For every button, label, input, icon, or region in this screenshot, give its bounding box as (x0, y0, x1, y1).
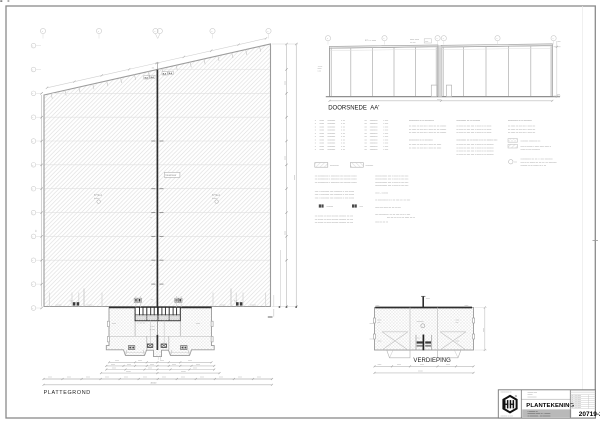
svg-text:xxxx: xxxx (284, 81, 286, 85)
svg-text:xxxx: xxxx (188, 360, 192, 362)
svg-text:xxxxxxxxx xx xx xxxxxxx: xxxxxxxxx xx xx xxxxxxx (508, 120, 533, 122)
svg-text:xxxxx: xxxxx (418, 371, 423, 373)
svg-text:xxxxxx: xxxxxx (250, 304, 256, 306)
svg-text:xxxxxxxxxxx xxx x xxxx xx xxx: xxxxxxxxxxx xxx x xxxx xx xxx xxx (375, 175, 409, 177)
svg-text:DOORSNEDE AA': DOORSNEDE AA' (328, 105, 379, 111)
svg-text:xxxx: xxxx (112, 367, 116, 369)
svg-text:xxxxxxx xxxxxxxx xx: xxxxxxx xxxxxxxx xx (521, 141, 542, 143)
svg-text:xxxxxxxxx xx xx xxxxxxx: xxxxxxxxx xx xx xxxxxxx (409, 140, 434, 142)
svg-text:xxxxxxxx: xxxxxxxx (330, 165, 340, 167)
svg-text:xxx xx xxxxx x xxxx xxxx xxxx: xxx xx xxxxx x xxxx xxxx xxxx x (521, 146, 552, 148)
svg-text:xxx: xxx (558, 41, 561, 43)
svg-text:xxxxxxx: xxxxxxx (328, 136, 337, 138)
svg-text:xx xxxxx xx xxxx xxxxxx xxxxxx: xx xxxxx xx xxxx xxxxxx xxxxxxx xx xxx (315, 219, 354, 221)
svg-text:xxxxxxx: xxxxxxx (417, 321, 424, 323)
svg-text:xxxx: xxxx (48, 377, 52, 379)
svg-text:xxxx: xxxx (378, 341, 382, 343)
svg-text:xxxxxx: xxxxxx (220, 304, 226, 306)
svg-text:xxxxxxx: xxxxxxx (328, 149, 337, 151)
svg-text:xxxx: xxxx (105, 377, 109, 379)
svg-text:xxxx: xxxx (148, 367, 152, 369)
svg-text:xxxxxxxxxx xx xx x x xxx xxxxx: xxxxxxxxxx xx xx x x xxx xxxxxxx (521, 159, 554, 161)
svg-text:xx xxxxx xx xxxx xxxxxx xxxxxx: xx xxxxx xx xxxx xxxxxx xxxxxxx xx xxx (315, 216, 354, 218)
svg-text:xxxx: xxxx (238, 377, 242, 379)
svg-text:xxxx: xxxx (219, 377, 223, 379)
svg-text:xxx xxxxxxxx x xx xx xxx xx x: xxx xxxxxxxx x xx xx xxx xx xx x xxx (375, 214, 411, 216)
svg-text:xxxx: xxxx (86, 377, 90, 379)
svg-text:xxxxxxx: xxxxxxx (370, 123, 379, 125)
svg-text:x: x (267, 31, 268, 33)
svg-text:xxxxxxxxx xx xx xxxxxxx: xxxxxxxxx xx xx xxxxxxx (456, 120, 481, 122)
svg-text:xxxx: xxxx (456, 341, 460, 343)
svg-text:xx xxxx xx xxx xxx x xxxx xx: xx xxxx xx xxx xxx x xxxx xx (508, 132, 536, 134)
svg-text:xxxxx: xxxxx (181, 371, 186, 373)
svg-text:xxxx: xxxx (112, 323, 116, 325)
svg-text:xxxxxxxxx: xxxxxxxxx (528, 397, 537, 399)
svg-text:x: x (32, 284, 33, 286)
svg-text:x: x (32, 189, 33, 191)
svg-text:x.xx: x.xx (318, 71, 322, 73)
svg-text:x xx x: x xx x (416, 338, 421, 340)
svg-text:x: x (32, 93, 33, 95)
svg-text:20719-2: 20719-2 (579, 411, 600, 418)
svg-text:xxxx xxxx: xxxx xxxx (410, 39, 420, 41)
svg-text:xxxx: xxxx (160, 360, 164, 362)
svg-text:xxxxxxx: xxxxxxx (328, 133, 337, 135)
svg-text:xxx x xxxxxxxx xxx xxxxxxxx x: xxx x xxxxxxxx xxx xxxxxxxx x xxx xxxxx (315, 191, 355, 193)
svg-text:xxxx: xxxx (67, 377, 71, 379)
svg-text:xxxx: xxxx (162, 377, 166, 379)
svg-text:xx xxxxxxxx - xx xxxxxxxx: xx xxxxxxxx - xx xxxxxxxx (528, 415, 551, 417)
svg-text:xxx x xxxxxxxx xxx xxxxxxxx x: xxx x xxxxxxxx xxx xxxxxxxx x xxx xxxxx (315, 194, 355, 196)
svg-text:xxxxxxx: xxxxxxx (366, 165, 375, 167)
svg-text:xxxxxxxxxxx xxx x xxxx xx xxx: xxxxxxxxxxx xxx x xxxx xx xxx xxx (375, 185, 409, 187)
svg-text:xxxxxxx: xxxxxxx (328, 126, 337, 128)
svg-text:xxxxxx xx xx xxxxx xx x xx: xxxxxx xx xx xxxxx xx x xx (521, 165, 547, 167)
svg-text:xxxxxx: xxxxxx (327, 206, 334, 208)
svg-text:beton: beton (94, 197, 100, 200)
svg-text:xxxx: xxxx (127, 364, 131, 366)
svg-text:xxxx: xxxx (483, 328, 485, 332)
svg-text:xx xxxxxxxxxx x xxxxxxxx xxx x: xx xxxxxxxxxx x xxxxxxxx xxx xxxxxx xxxx… (315, 175, 358, 177)
svg-text:x.x.x: x.x.x (151, 326, 155, 328)
svg-text:xxxxxxx: xxxxxxx (370, 146, 379, 148)
svg-text:xxxx: xxxx (446, 364, 450, 366)
svg-text:xx xxxx xx xxx xxx x xxxx xx x: xx xxxx xx xxx xxx x xxxx xx xx xxxxxx (456, 147, 494, 149)
svg-text:xx xxx: xx xxx (410, 42, 416, 44)
svg-text:x: x (553, 38, 554, 40)
svg-text:xxxx xx xxx xxxxxxx: xxxx xx xxx xxxxxxx (521, 149, 541, 151)
svg-text:x: x (32, 213, 33, 215)
svg-text:xxxx xx xx xx: xxxx xx xx xx (375, 222, 389, 224)
svg-text:xxxx: xxxx (115, 360, 119, 362)
svg-text:xx xxxxxxxxx xx x xx xxx xx x: xx xxxxxxxxx xx x xx xxx xx x xx xxx (375, 200, 411, 202)
svg-text:x: x (154, 31, 155, 33)
svg-text:x: x (42, 31, 43, 33)
svg-text:xxxxxxx: xxxxxxx (328, 130, 337, 132)
svg-text:xx xxxxx xx xxxx xxxxxx xxxxxx: xx xxxxx xx xxxx xxxxxx xxxxxxx xx xxx (315, 222, 354, 224)
svg-text:xx xxxx xx xxx xxx x xxxx xx x: xx xxxx xx xxx xxx x xxxx xx xx xxxxxx (456, 154, 494, 156)
svg-text:xxxxxxx: xxxxxxx (370, 130, 379, 132)
svg-text:xx xxxx xx xxx xxx x xxxx xx: xx xxxx xx xxx xxx x xxxx xx (508, 126, 536, 128)
svg-text:xxxxx: xxxxx (294, 175, 296, 180)
svg-text:xx xxxx xx xxx xxx x xxxx xx x: xx xxxx xx xxx xxx x xxxx xx xx xxxxxx (456, 144, 494, 146)
svg-text:x: x (32, 46, 33, 48)
svg-text:xx xxxx xx xxx xxx x xxxx xx x: xx xxxx xx xxx xxx x xxxx xx xx xxxxxx (409, 129, 447, 131)
svg-text:xxxxxx: xxxxxx (87, 304, 93, 306)
svg-text:xxx: xxx (456, 322, 459, 324)
svg-text:xxxx: xxxx (284, 156, 286, 160)
svg-text:xxxx: xxxx (420, 364, 424, 366)
svg-text:xxxxxxx: xxxxxxx (328, 120, 337, 122)
svg-text:xxxx - xxxxxx: xxxx - xxxxxx (375, 192, 389, 194)
svg-text:xxxx: xxxx (124, 377, 128, 379)
svg-text:xxxxxxxxxxx xxx x xxxx xx xxx: xxxxxxxxxxx xxx x xxxx xx xxx xxx (375, 182, 409, 184)
svg-text:xxxxxxx: xxxxxxx (370, 139, 379, 141)
svg-text:40500: 40500 (151, 383, 158, 385)
svg-text:xxxx: xxxx (257, 377, 261, 379)
svg-text:x: x (437, 38, 438, 40)
svg-text:xxxx: xxxx (465, 305, 469, 307)
svg-text:x: x (32, 308, 33, 310)
svg-text:xxxx: xxxx (437, 99, 441, 101)
svg-text:x: x (32, 69, 33, 71)
svg-text:beton: beton (212, 197, 218, 200)
svg-text:xx xxxx xx xxx xxx x xxxx xx x: xx xxxx xx xxx xxx x xxxx xx xxxx (409, 147, 442, 149)
svg-text:x: x (327, 38, 328, 40)
svg-text:xx xxxx xx xxx xxx x xxxx xx x: xx xxxx xx xxx xxx x xxxx xx xx xxxx (456, 129, 492, 131)
svg-text:x: x (32, 141, 33, 143)
svg-text:xx xxx: xx xxx (150, 329, 156, 331)
svg-text:xx xxxx xx xxx xxx x xxxx xx x: xx xxxx xx xxx xxx x xxxx xx xx xxxxxx (409, 132, 447, 134)
svg-text:xxxxxxx: xxxxxxx (370, 149, 379, 151)
svg-text:xxxx xxx xxxx xx xx xx xxx: xxxx xxx xxxx xx xx xx xxx (375, 207, 401, 209)
svg-text:xxxxxxxxx xx xx xxxxx xx xx xx: xxxxxxxxx xx xx xxxxx xx xx xx xxxxxx xx… (456, 140, 498, 142)
svg-text:xx: xx (150, 265, 152, 267)
svg-text:875+ x xxxx: 875+ x xxxx (365, 40, 377, 42)
svg-text:x: x (32, 117, 33, 119)
svg-text:xxx: xxx (378, 322, 381, 324)
svg-text:x: x (443, 38, 444, 40)
svg-text:x x x x x x: x x x x x x (137, 322, 145, 324)
svg-text:xxxx: xxxx (196, 364, 200, 366)
svg-text:xxxxxxxxx xx xx xxxxxxxx: xxxxxxxxx xx xx xxxxxxxx (409, 120, 435, 122)
svg-text:x: x (32, 165, 33, 167)
svg-text:xxxxxxx: xxxxxxx (328, 146, 337, 148)
svg-text:xxxx: xxxx (172, 364, 176, 366)
svg-text:xxxx: xxxx (196, 323, 200, 325)
svg-text:xxxxxxx: xxxxxxx (370, 126, 379, 128)
svg-text:xxxx: xxxx (138, 360, 142, 362)
svg-text:x: x (211, 31, 212, 33)
svg-text:5770+vl: 5770+vl (212, 195, 221, 197)
svg-text:xxxx: xxxx (200, 377, 204, 379)
svg-text:xxx xx xx xxxxx xx xx xx x xx: xxx xx xx xxxxx xx xx xx x xx xxxxxxx (521, 162, 558, 164)
svg-text:x: x (32, 236, 33, 238)
svg-text:5770+vl: 5770+vl (94, 195, 103, 197)
svg-text:x: x (496, 38, 497, 40)
svg-text:x: x (32, 260, 33, 262)
svg-text:xx xxxx xx xxx xxx x xxxx xx x: xx xxxx xx xxx xxx x xxxx xx xx xxxx (456, 126, 492, 128)
svg-text:xxxx: xxxx (193, 367, 197, 369)
svg-text:xxxx: xxxx (378, 364, 382, 366)
svg-text:VERDIEPING: VERDIEPING (413, 358, 451, 364)
svg-text:xxx: xxx (425, 41, 428, 43)
svg-text:xx xxxx xx xxx xxx x xxxx xx x: xx xxxx xx xxx xxx x xxxx xx xx xxxxxx (409, 126, 447, 128)
svg-text:xx xxxx xx xxx xxx x xxxx xx x: xx xxxx xx xxx xxx x xxxx xx xxxx (409, 144, 442, 146)
svg-text:xx xxxxxxxxxx x xxxxxxxx xxx x: xx xxxxxxxxxx x xxxxxxxx xxx xxxxxx xxxx… (315, 182, 358, 184)
svg-text:xxxxxxx: xxxxxxx (328, 139, 337, 141)
svg-text:xxxx: xxxx (397, 364, 401, 366)
svg-text:xx xxxxxxxxxx x xxxxxxxx xxx x: xx xxxxxxxxxx x xxxxxxxx xxx xxxxxx xxxx… (315, 179, 358, 181)
svg-text:xxxxxxx: xxxxxxx (328, 123, 337, 125)
svg-text:xx x xx xxxx: xx x xx xxxx (571, 407, 581, 409)
svg-text:PLANTEKENING: PLANTEKENING (526, 403, 574, 409)
svg-text:xxxxxxx: xxxxxxx (370, 120, 379, 122)
svg-text:PLATTEGROND: PLATTEGROND (44, 390, 91, 396)
svg-text:xxxx: xxxx (143, 377, 147, 379)
svg-text:xxxx: xxxx (150, 364, 154, 366)
svg-text:xxx x xxxxxxxx xxx xxxxxxxx x: xxx x xxxxxxxx xxx xxxxxxxx x xxx xxxxx (315, 197, 355, 199)
svg-text:xxxxxxxxxxx xxx x xxxx xx xxx: xxxxxxxxxxx xxx x xxxx xx xxx xxx (375, 179, 409, 181)
svg-text:xxxxxxx: xxxxxxx (370, 133, 379, 135)
svg-text:xxxxx: xxxxx (126, 371, 131, 373)
svg-text:xxx: xxx (514, 162, 517, 164)
svg-text:xxxx: xxxx (111, 364, 115, 366)
svg-text:xx xxxx xx xxx xxx x xxxx xx x: xx xxxx xx xxx xxx x xxxx xx xx xxxx (456, 132, 492, 134)
svg-text:xxxx: xxxx (284, 231, 286, 235)
svg-text:xxxx: xxxx (426, 298, 430, 300)
svg-text:xxxx: xxxx (181, 377, 185, 379)
svg-text:xxxxxx: xxxxxx (56, 304, 62, 306)
svg-text:xxxxxxx: xxxxxxx (370, 136, 379, 138)
svg-text:xx: xx (151, 299, 153, 301)
svg-text:x: x (383, 38, 384, 40)
svg-text:x: x (98, 31, 99, 33)
svg-text:xxxxxxx: xxxxxxx (370, 143, 379, 145)
svg-text:xx xxxx xx xxx xxx x xxxx xx x: xx xxxx xx xxx xxx x xxxx xx xx xxxxxx (456, 151, 494, 153)
svg-text:xxx xx xx xx xx xx xxxx xx xx: xxx xx xx xx xx xx xxxx xx xx (387, 217, 416, 219)
svg-text:bouwmuur: bouwmuur (166, 174, 177, 177)
svg-text:xxxxxxxxx xx: xxxxxxxxx xx (501, 392, 512, 394)
svg-text:xxxx: xxxx (376, 305, 380, 307)
svg-text:xxxxxxx: xxxxxxx (328, 143, 337, 145)
svg-text:xx xxxx xx xxx xxx x xxxx xx: xx xxxx xx xxx xxx x xxxx xx (508, 129, 536, 131)
svg-text:xxxxxxx xx xxx: xxxxxxx xx xxx (501, 415, 513, 417)
svg-text:xx: xx (150, 217, 152, 219)
